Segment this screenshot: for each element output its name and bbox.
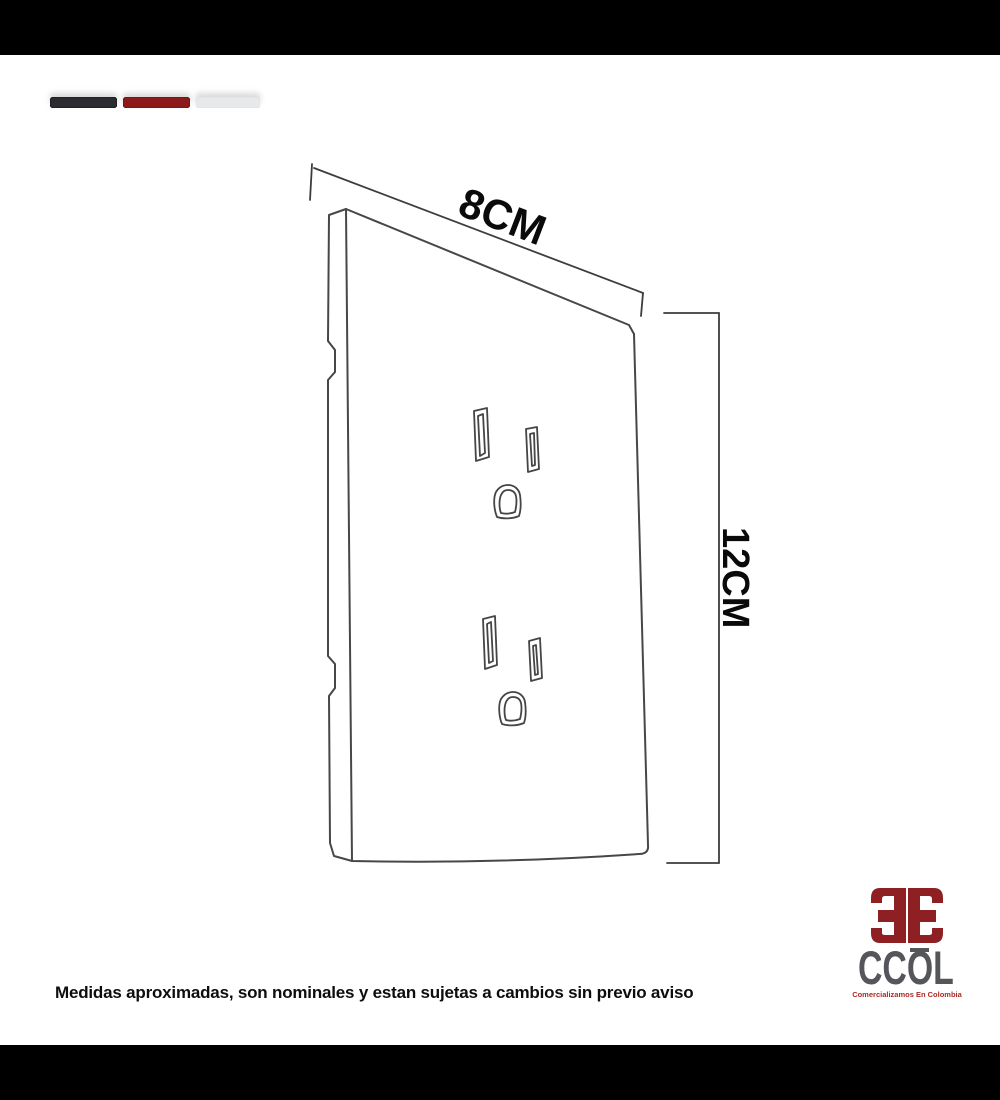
plate-front-face xyxy=(346,209,648,862)
width-dim-right-tick xyxy=(641,293,643,316)
brand-logo-svg: CCOL Comercializamos En Colombia xyxy=(830,884,995,1009)
height-dimension xyxy=(664,313,719,863)
disclaimer-text: Medidas aproximadas, son nominales y est… xyxy=(55,983,695,1003)
width-dim-left-tick xyxy=(310,164,312,200)
logo-tagline: Comercializamos En Colombia xyxy=(852,990,962,999)
monogram-left-c xyxy=(871,888,906,943)
height-dimension-label: 12CM xyxy=(714,527,756,628)
cc-monogram-icon xyxy=(871,888,943,943)
brand-logo: CCOL Comercializamos En Colombia xyxy=(830,884,995,1014)
width-dimension-label: 8CM xyxy=(453,179,553,255)
logo-wordmark: CCOL xyxy=(858,942,954,995)
monogram-right-c xyxy=(908,888,943,943)
